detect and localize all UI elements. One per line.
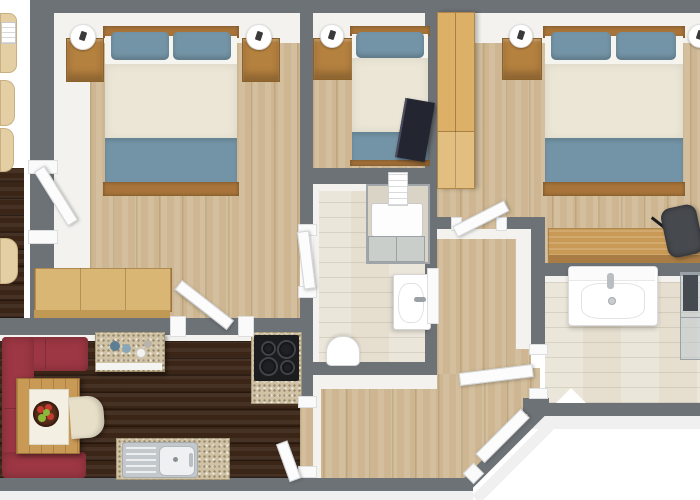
faucet [414,297,426,302]
lamp-bulb [328,30,336,40]
wardrobe [437,12,475,189]
exterior-band [0,491,473,500]
glassware [110,341,120,351]
neighbor-chair [0,128,14,172]
burner [259,357,278,376]
kitchen-island [95,332,165,372]
shower-tray [371,203,423,237]
wall-top [30,0,700,13]
glassware [144,340,152,348]
footboard [103,182,239,196]
pillow [551,32,611,60]
burner [277,340,296,359]
shower-column [388,172,408,206]
door-frame [170,316,186,337]
wall-face [313,375,321,478]
dresser [34,268,170,318]
glassware [122,344,131,353]
door-frame [529,388,548,399]
shower-shelf-dark [683,275,698,311]
foot-blanket [545,138,683,184]
shower-glass-panel [396,236,425,262]
wall-lamp [509,24,533,48]
glassware [136,348,146,358]
vanity-washbasin [568,266,658,326]
dresser-top [34,268,172,312]
faucet [189,453,193,467]
exterior-band [528,416,700,429]
drainboard [126,447,156,473]
apartment-floor-plan [0,0,700,500]
apple-green [43,409,50,416]
door-frame [298,466,317,478]
wall-face [516,229,531,349]
wardrobe-lower [438,132,474,188]
pillow [616,32,676,60]
pillow [111,32,169,60]
wall-bathright-bottom [528,403,700,416]
drain [173,457,178,462]
wall-bath-bottom [300,362,437,375]
corner-sofa [2,452,86,478]
neighbor-chair [0,80,15,126]
door-frame [28,230,58,244]
shower-glass-panel [368,236,397,262]
door-frame [238,316,254,337]
footboard [543,182,685,196]
wall-hall-bath [531,217,545,348]
burner [261,341,276,356]
dining-chair [69,395,106,439]
lamp-bulb [255,31,263,41]
sink-unit [122,442,198,478]
lamp-bulb [517,30,525,40]
wall-lamp [70,24,96,50]
neighbor-chair [0,238,18,284]
island-front [96,363,162,370]
radiator [1,22,16,44]
burner [280,360,295,375]
drain [608,297,616,305]
double-bed [543,26,685,196]
stove-counter [251,332,302,404]
wall-corner-patch [523,398,549,414]
lamp-bulb [79,31,87,41]
double-bed [103,26,239,196]
faucet [607,273,614,289]
duvet [545,64,683,140]
washbasin [393,274,431,330]
kitchen-sink-counter [116,438,230,480]
door-frame [529,344,548,355]
basin-bowl [398,283,424,323]
sofa-cushion-line [45,339,46,369]
lamp-bulb [696,30,700,40]
wall-lamp [246,24,272,50]
pillow [173,32,231,60]
foot-blanket [105,138,237,184]
toilet [326,336,360,366]
duvet [105,64,237,140]
wall-lamp [320,24,344,48]
cooktop [254,335,299,381]
wall-shelf [427,268,439,324]
wall-bath-top [300,168,437,184]
wall-bottom [0,478,473,491]
pillow [356,32,424,58]
wall-center-vertical [300,10,313,226]
glass-shower [680,272,700,360]
door-frame [496,217,507,231]
door-frame [298,396,317,408]
dresser-front [34,310,170,318]
glass-frame-line [681,317,700,318]
fruit-bowl [33,401,59,427]
